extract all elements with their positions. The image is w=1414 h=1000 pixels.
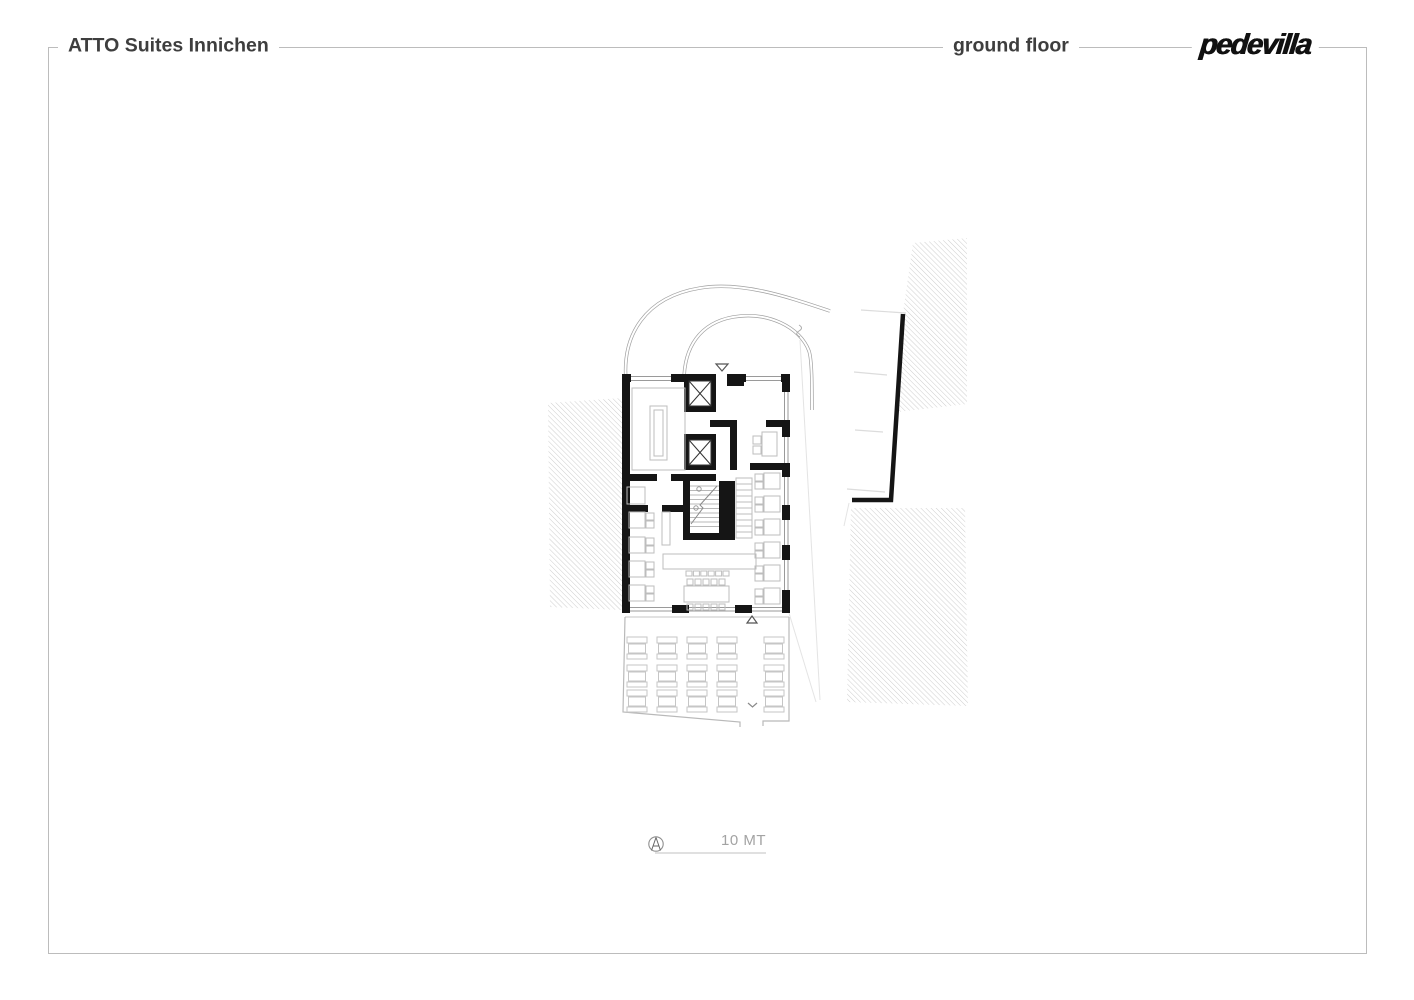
pedevilla-logo: pedevilla: [1190, 29, 1320, 62]
building-walls: [622, 373, 791, 614]
triangle-down-marker: [716, 364, 728, 371]
terrace-table-grid: [627, 637, 784, 712]
chevron-down-marker: [748, 703, 757, 707]
construction-lines: [789, 340, 849, 702]
floor-label: ground floor: [943, 35, 1079, 58]
retaining-wall: [852, 314, 903, 500]
elevator-shafts: [689, 381, 711, 465]
site-hatch-left: [548, 398, 622, 610]
site-hatch-upper-right: [897, 238, 967, 412]
terrace: [623, 617, 789, 727]
reception-desk: [753, 432, 777, 456]
floor-plan-drawing: [0, 0, 1414, 1000]
banquette-bench: [736, 478, 752, 538]
bar-counter: [663, 554, 756, 576]
kitchen-island: [650, 406, 667, 460]
site-hatch-lower-right: [847, 508, 968, 706]
north-arrow-icon: [649, 837, 663, 851]
kitchen-counter: [632, 388, 685, 470]
drawing-sheet: ATTO Suites Innichen ground floor pedevi…: [0, 0, 1414, 1000]
scale-label: 10 MT: [698, 832, 766, 849]
staircase: [690, 486, 719, 527]
page-title: ATTO Suites Innichen: [58, 35, 279, 58]
